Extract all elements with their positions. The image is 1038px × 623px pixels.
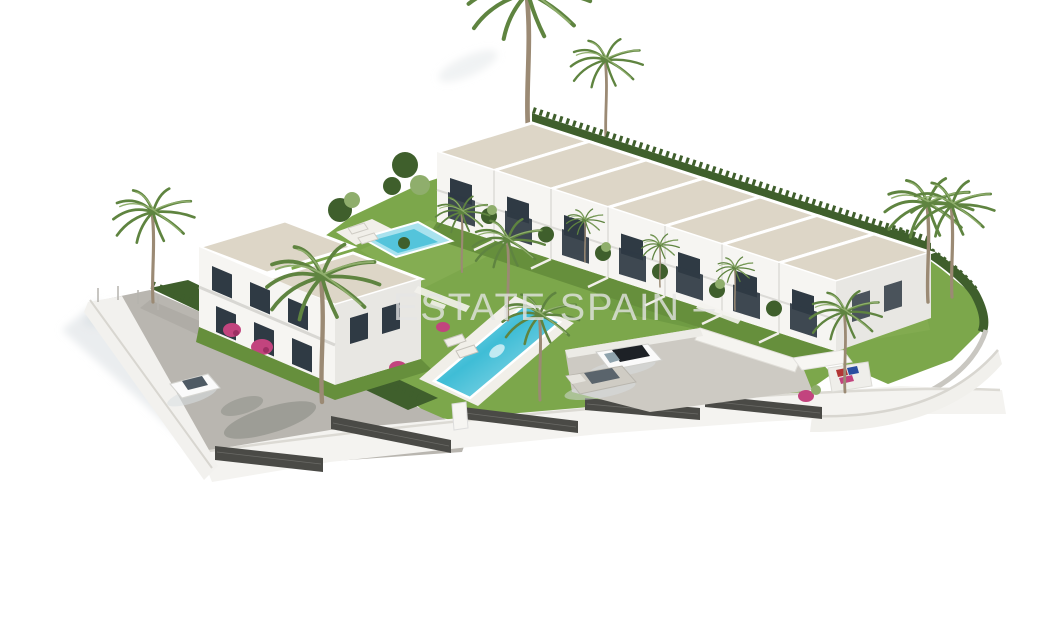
gate-pillar bbox=[452, 402, 468, 430]
pool-island-plant bbox=[398, 237, 410, 249]
pool-flowers bbox=[436, 322, 450, 332]
site-render bbox=[0, 0, 1038, 623]
render-canvas: ESTATE SPAIN – bbox=[0, 0, 1038, 623]
background-palm-trees bbox=[469, 0, 643, 140]
